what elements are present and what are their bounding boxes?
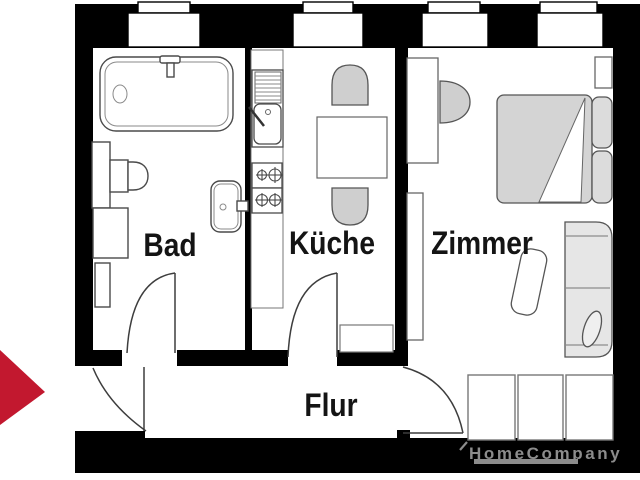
- room-label-kueche: Küche: [270, 227, 393, 259]
- door-swing-arc: [93, 368, 146, 431]
- pillow: [592, 97, 612, 148]
- window-zimmer-right: [537, 2, 603, 47]
- door-swing-arc: [403, 367, 463, 433]
- toilet-bowl: [128, 162, 148, 190]
- window-recess: [128, 13, 200, 47]
- bathroom-shelf: [95, 263, 110, 307]
- washbasin-drain-icon: [220, 204, 226, 210]
- radiator: [595, 57, 612, 88]
- room-label-zimmer: Zimmer: [420, 227, 543, 259]
- wall-bottom-step: [75, 431, 145, 439]
- wall-hall-left: [75, 350, 122, 366]
- window-bad: [128, 2, 200, 47]
- room-label-flur: Flur: [269, 389, 392, 421]
- sink-drainer-lines: [255, 76, 281, 100]
- window-recess: [422, 13, 488, 47]
- entrance-door: [93, 367, 146, 431]
- desk: [407, 58, 438, 163]
- wardrobe-section: [566, 375, 613, 440]
- kitchen-sideboard: [340, 325, 393, 352]
- washbasin-faucet-icon: [237, 201, 248, 211]
- wall-right: [613, 4, 640, 473]
- zimmer-door: [403, 367, 463, 433]
- window-sill: [540, 2, 597, 13]
- pillow: [592, 151, 612, 203]
- bathtub-drain-icon: [113, 85, 127, 103]
- shelf: [407, 193, 423, 340]
- bathtub-faucet-stem: [167, 63, 174, 77]
- window-kueche: [293, 2, 363, 47]
- kitchen-furniture: [249, 50, 393, 352]
- room-label-bad: Bad: [108, 229, 231, 261]
- floor-plan: Bad Küche Zimmer Flur HomeCompany: [0, 0, 640, 480]
- toilet-tank: [110, 160, 128, 192]
- window-recess: [537, 13, 603, 47]
- bathroom-cabinet: [92, 142, 110, 208]
- wardrobe-section: [468, 375, 515, 440]
- window-sill: [428, 2, 480, 13]
- window-recess: [293, 13, 363, 47]
- wall-hall-mid: [177, 350, 288, 366]
- bathtub-faucet-icon: [160, 56, 180, 63]
- watermark-logo: HomeCompany: [469, 444, 640, 464]
- wall-left: [75, 4, 93, 364]
- dining-table: [317, 117, 387, 178]
- hallway-wardrobe: [468, 375, 613, 440]
- door-swing-arc: [288, 273, 337, 357]
- entrance-arrow-icon: [0, 350, 45, 425]
- chair-top: [332, 65, 368, 105]
- door-swing-arc: [127, 273, 175, 353]
- kueche-door: [288, 273, 337, 357]
- window-zimmer-left: [422, 2, 488, 47]
- desk-chair: [440, 81, 470, 123]
- window-sill: [303, 2, 353, 13]
- window-sill: [138, 2, 190, 13]
- chair-bottom: [332, 188, 368, 225]
- wall-kueche-zimmer: [395, 48, 408, 366]
- zimmer-furniture: [407, 57, 612, 357]
- bad-door: [127, 273, 175, 353]
- bathroom-furniture: [92, 56, 248, 307]
- wardrobe-section: [518, 375, 563, 440]
- wall-stub-zimmer-door: [397, 430, 410, 440]
- sink-knob-icon: [266, 110, 271, 115]
